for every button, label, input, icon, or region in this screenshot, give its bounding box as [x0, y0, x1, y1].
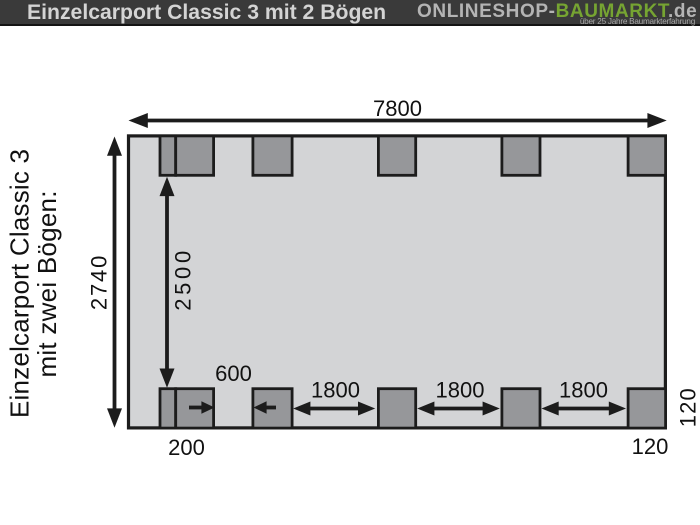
- svg-text:Einzelcarport Classic 3: Einzelcarport Classic 3: [4, 149, 34, 418]
- svg-text:7800: 7800: [373, 96, 422, 121]
- svg-text:600: 600: [215, 361, 252, 386]
- svg-text:200: 200: [168, 435, 205, 460]
- svg-text:mit zwei Bögen:: mit zwei Bögen:: [32, 191, 62, 378]
- svg-text:120: 120: [675, 388, 700, 427]
- svg-text:2740: 2740: [87, 256, 112, 311]
- svg-text:1800: 1800: [311, 378, 360, 403]
- svg-text:1800: 1800: [559, 378, 608, 403]
- svg-text:120: 120: [632, 434, 669, 459]
- svg-text:1800: 1800: [436, 378, 485, 403]
